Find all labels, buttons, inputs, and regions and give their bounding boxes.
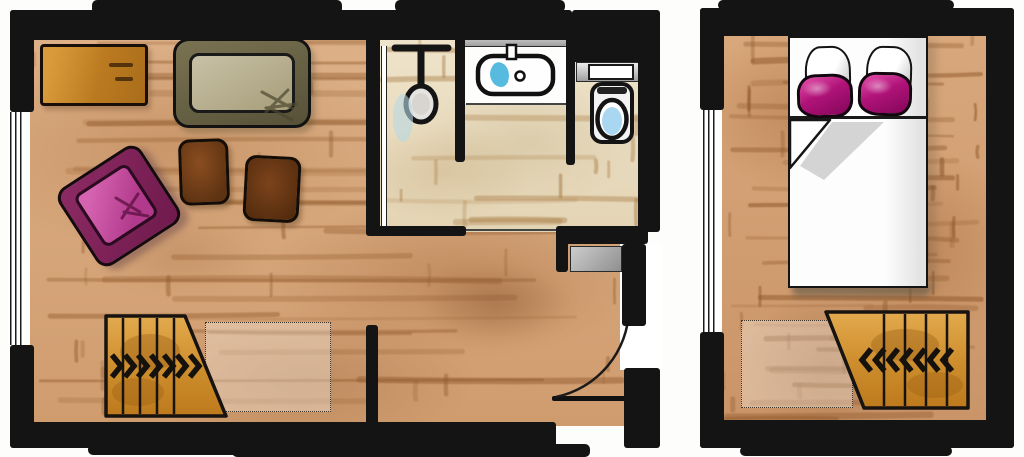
bath-opening-line: [466, 229, 568, 231]
living-entry-partition: [366, 325, 378, 425]
armchair-seat: [73, 162, 160, 249]
left-unit-top-wall: [10, 10, 572, 40]
left-unit-bottom-right-corner: [624, 368, 660, 448]
window-glazing-lines: [10, 112, 23, 345]
left-unit-right-wall: [638, 10, 660, 232]
right-unit-window: [701, 110, 719, 332]
entry-top-wall: [556, 226, 648, 244]
sideboard: [40, 44, 148, 106]
right-unit-left-wall-upper: [700, 8, 724, 110]
entry-door-leaf: [552, 396, 628, 401]
cistern-lid: [588, 64, 634, 80]
sofa: [173, 38, 311, 128]
right-unit-bottom-wall: [700, 420, 1014, 448]
magenta-pillow: [858, 72, 913, 117]
shower-glass-line: [381, 46, 387, 226]
side-table: [242, 155, 301, 224]
wall-paint-bleed: [232, 444, 590, 457]
magenta-pillow: [796, 73, 854, 119]
right-unit-top-wall: [700, 8, 1014, 36]
stairs-dotted-outline: [741, 320, 853, 408]
coffee-table: [178, 138, 230, 206]
sideboard-handle: [109, 63, 133, 67]
window-glazing-lines: [703, 110, 717, 332]
wall-paint-bleed: [740, 446, 952, 456]
sofa-cushion: [189, 53, 295, 113]
bath-bottom-wall: [366, 226, 466, 236]
stairs-dotted-outline: [205, 322, 331, 412]
shower-sink-partition: [455, 30, 465, 162]
counter-edge-line: [466, 103, 566, 105]
wall-paint-bleed: [88, 444, 238, 455]
floor-plan-canvas: [0, 0, 1024, 457]
left-unit-window: [8, 112, 25, 345]
door-hinge-wall: [622, 244, 646, 326]
entry-left-stub: [556, 226, 568, 272]
left-unit-left-wall-upper: [10, 10, 34, 112]
right-unit-left-wall-lower: [700, 332, 724, 448]
living-bath-partition: [366, 30, 380, 232]
left-unit-left-wall-lower: [10, 345, 34, 429]
sideboard-handle: [115, 77, 133, 81]
entry-mat: [570, 246, 622, 272]
right-unit-right-wall: [986, 8, 1014, 448]
sink-wc-partition: [566, 30, 575, 165]
